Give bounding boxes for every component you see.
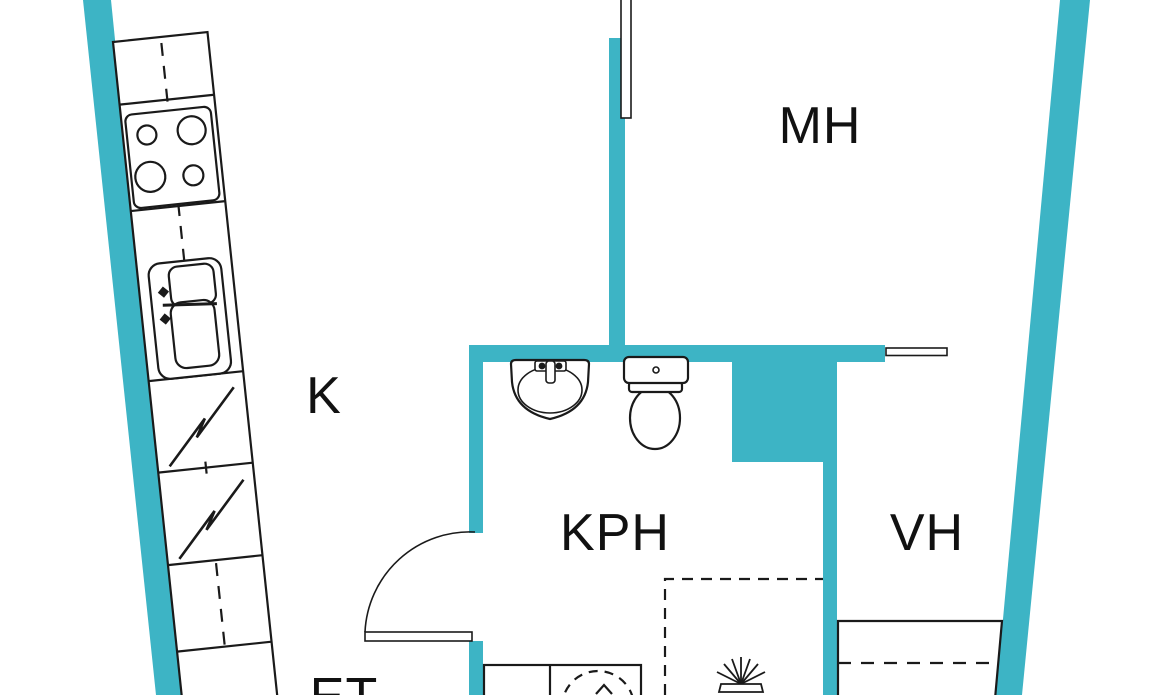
- door-leaf-vh: [886, 348, 947, 356]
- washbasin-icon: [511, 360, 589, 419]
- room-label-et: ET: [310, 668, 378, 695]
- door-swing-arc: [365, 532, 475, 632]
- wall-kph-left-lower: [469, 641, 483, 695]
- outer-wall-right: [996, 0, 1090, 695]
- toilet-bowl: [630, 387, 680, 449]
- wall-kph-vh-vertical: [823, 360, 837, 695]
- shower-icon: [717, 657, 765, 692]
- counter-centerline-tick: [205, 462, 206, 474]
- wardrobe-icon: [838, 621, 1002, 695]
- room-label-vh: VH: [890, 504, 964, 562]
- room-label-kph: KPH: [560, 504, 670, 562]
- stove-icon: [125, 106, 220, 208]
- toilet-icon: [624, 357, 688, 449]
- wall-kph-left-upper: [469, 345, 483, 533]
- duct-shaft: [732, 360, 823, 462]
- room-label-mh: MH: [779, 97, 862, 155]
- door-leaf-kph: [365, 632, 472, 641]
- faucet-spout: [546, 361, 555, 383]
- toilet-tank: [624, 357, 688, 383]
- door-leaf-mh: [621, 0, 631, 118]
- kitchen-sink-icon: [147, 257, 232, 380]
- floor-plan: MH K KPH VH ET: [0, 0, 1168, 695]
- washing-machine-icon: [484, 665, 641, 695]
- room-label-k: K: [306, 367, 342, 425]
